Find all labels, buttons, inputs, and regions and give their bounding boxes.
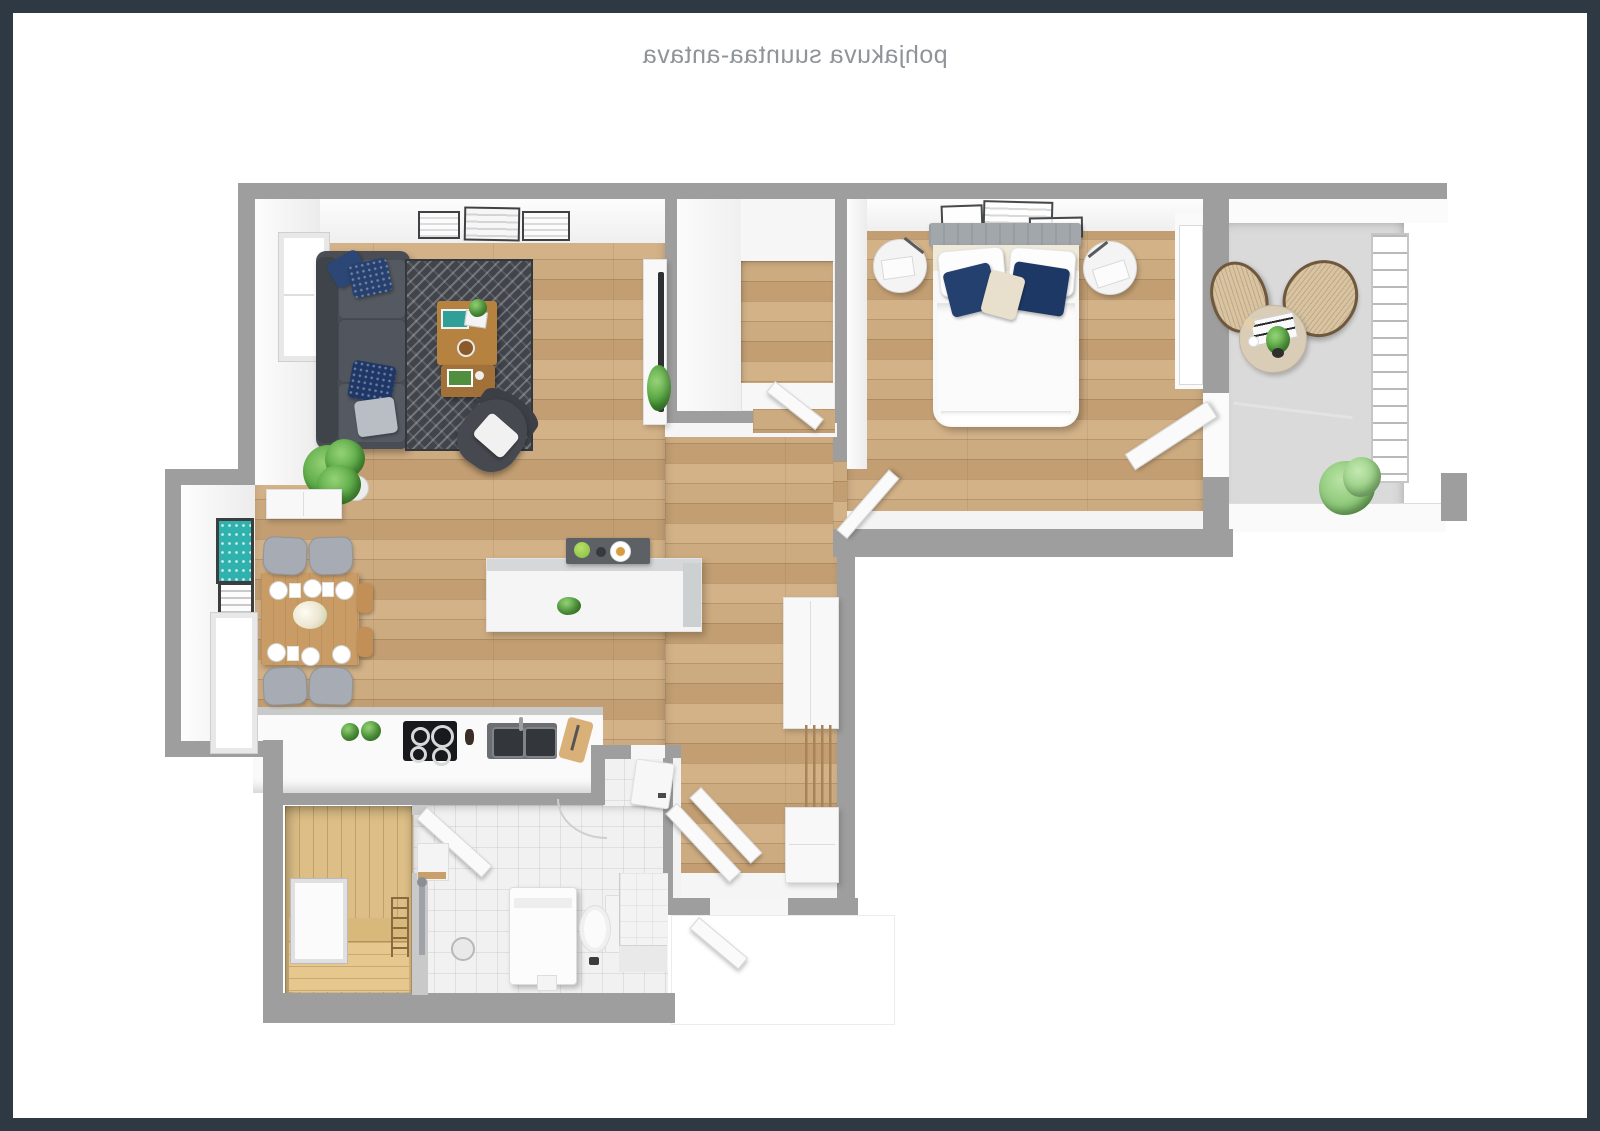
wall-bath-nook-top-right — [665, 745, 681, 759]
dining-window — [211, 613, 257, 753]
wood-chair — [357, 627, 373, 657]
book — [447, 369, 473, 387]
toilet-brush — [589, 957, 599, 965]
floorplan-disclaimer-text: pohjakuva suuntaa-antava — [642, 41, 947, 70]
washer-control-band — [514, 898, 572, 908]
flower-centerpiece — [293, 601, 327, 629]
dining-chair — [308, 666, 353, 706]
teal-wall-art — [216, 518, 254, 584]
nightstand-left — [873, 239, 927, 293]
balcony-bush — [1319, 457, 1383, 519]
towel-ladder — [391, 897, 409, 957]
grey-pillow — [354, 396, 399, 437]
coffee-table — [437, 301, 497, 365]
cup — [1244, 318, 1255, 329]
sink-basin-right — [524, 727, 557, 758]
sink-basin-left — [492, 727, 525, 758]
lime-bowl — [574, 542, 590, 558]
exterior-gap-left — [153, 757, 265, 1023]
window-mullion — [284, 294, 314, 296]
balcony-table — [1239, 305, 1307, 373]
wall-closet-bottom — [665, 409, 755, 423]
kitchen-backsplash-strip — [253, 707, 603, 715]
bathroom-door-leaf — [630, 759, 675, 810]
detergent-box — [537, 975, 557, 991]
shower-head — [417, 877, 427, 887]
small-bowl — [596, 547, 606, 557]
bedroom-window-glass — [1179, 225, 1203, 385]
book — [881, 256, 915, 280]
cabinet-seam — [789, 844, 835, 845]
bathroom-door-opening — [631, 745, 665, 759]
bed-headboard — [929, 223, 1081, 247]
burner-icon — [431, 725, 454, 748]
island-serving-tray — [566, 538, 650, 564]
bench-step — [619, 945, 667, 972]
bed-duvet — [937, 303, 1075, 426]
wood-chair — [357, 583, 373, 613]
wardrobe-seam — [810, 601, 811, 725]
dining-chair — [262, 536, 308, 576]
wall-hook — [658, 793, 666, 798]
wall-top — [238, 183, 1447, 199]
dining-chair — [308, 536, 353, 576]
wall-bottom-main — [263, 993, 675, 1023]
cup — [1248, 336, 1259, 347]
wall-art-frames — [418, 207, 566, 241]
hall-wardrobe — [783, 597, 839, 729]
dining-chair — [262, 666, 308, 706]
bedroom-left-wall-face — [847, 199, 867, 469]
napkin — [322, 582, 334, 597]
place-setting — [332, 645, 351, 664]
floor-plan-page: pohjakuva suuntaa-antava — [0, 0, 1600, 1131]
art-frame — [522, 211, 570, 241]
corner-shelf — [417, 843, 449, 881]
wall-living-left — [238, 183, 255, 485]
wall-bath-nook-top-left — [603, 745, 631, 759]
bush-leaves — [1343, 457, 1381, 497]
balcony-railing — [1371, 233, 1409, 483]
burner-icon — [411, 727, 430, 746]
floor-drain — [451, 937, 475, 961]
place-setting — [335, 581, 354, 600]
toilet-bowl — [579, 905, 611, 953]
kitchen-sink — [487, 723, 557, 759]
place-setting — [267, 643, 286, 662]
sauna-window — [291, 879, 347, 963]
cooktop — [403, 721, 457, 761]
art-frame — [464, 207, 521, 242]
kitchen-island — [486, 558, 702, 632]
wall-hall-right — [837, 531, 855, 900]
tray — [457, 339, 475, 357]
napkin — [289, 583, 301, 598]
burner-icon — [432, 747, 451, 766]
sofa-backrest — [316, 257, 338, 443]
burner-icon — [410, 746, 427, 763]
wall-sauna-left — [263, 740, 283, 996]
wall-balcony-left-lower — [1203, 477, 1229, 529]
bed-foot-fold — [941, 411, 1071, 425]
sideboard-seam — [303, 492, 304, 516]
entry-door-opening — [710, 898, 788, 915]
wall-bedroom-left — [833, 199, 847, 461]
nightstand-right — [1083, 241, 1137, 295]
faucet-icon — [519, 717, 523, 731]
wall-nook-left — [165, 469, 181, 757]
closet-floor — [741, 261, 833, 383]
wall-bedroom-bottom — [833, 529, 1233, 557]
place-setting — [303, 579, 322, 598]
place-setting — [301, 647, 320, 666]
bedroom-bottom-wall-face — [847, 511, 1203, 529]
double-bed — [933, 245, 1079, 427]
sideboard — [266, 489, 342, 519]
food-plate — [610, 541, 631, 562]
wardrobe-left-column — [677, 199, 742, 411]
washing-machine — [509, 887, 577, 985]
wall-block-right-end — [1441, 473, 1467, 521]
art-frame — [418, 211, 460, 239]
napkin — [287, 646, 299, 661]
shower-bar — [419, 877, 425, 955]
cup — [475, 371, 484, 380]
book — [1092, 259, 1131, 289]
shoe-cabinet — [785, 807, 839, 883]
sofa — [316, 251, 410, 449]
place-setting — [269, 581, 288, 600]
knife-icon — [570, 725, 580, 751]
pepper-grinder — [465, 729, 474, 745]
balcony-top-face — [1228, 199, 1448, 223]
island-right-edge — [683, 563, 701, 627]
wall-counter-bath — [265, 793, 605, 805]
island-greens — [557, 597, 581, 615]
plant-pot-dark — [1272, 348, 1284, 358]
wardrobe-top-band — [741, 199, 835, 262]
